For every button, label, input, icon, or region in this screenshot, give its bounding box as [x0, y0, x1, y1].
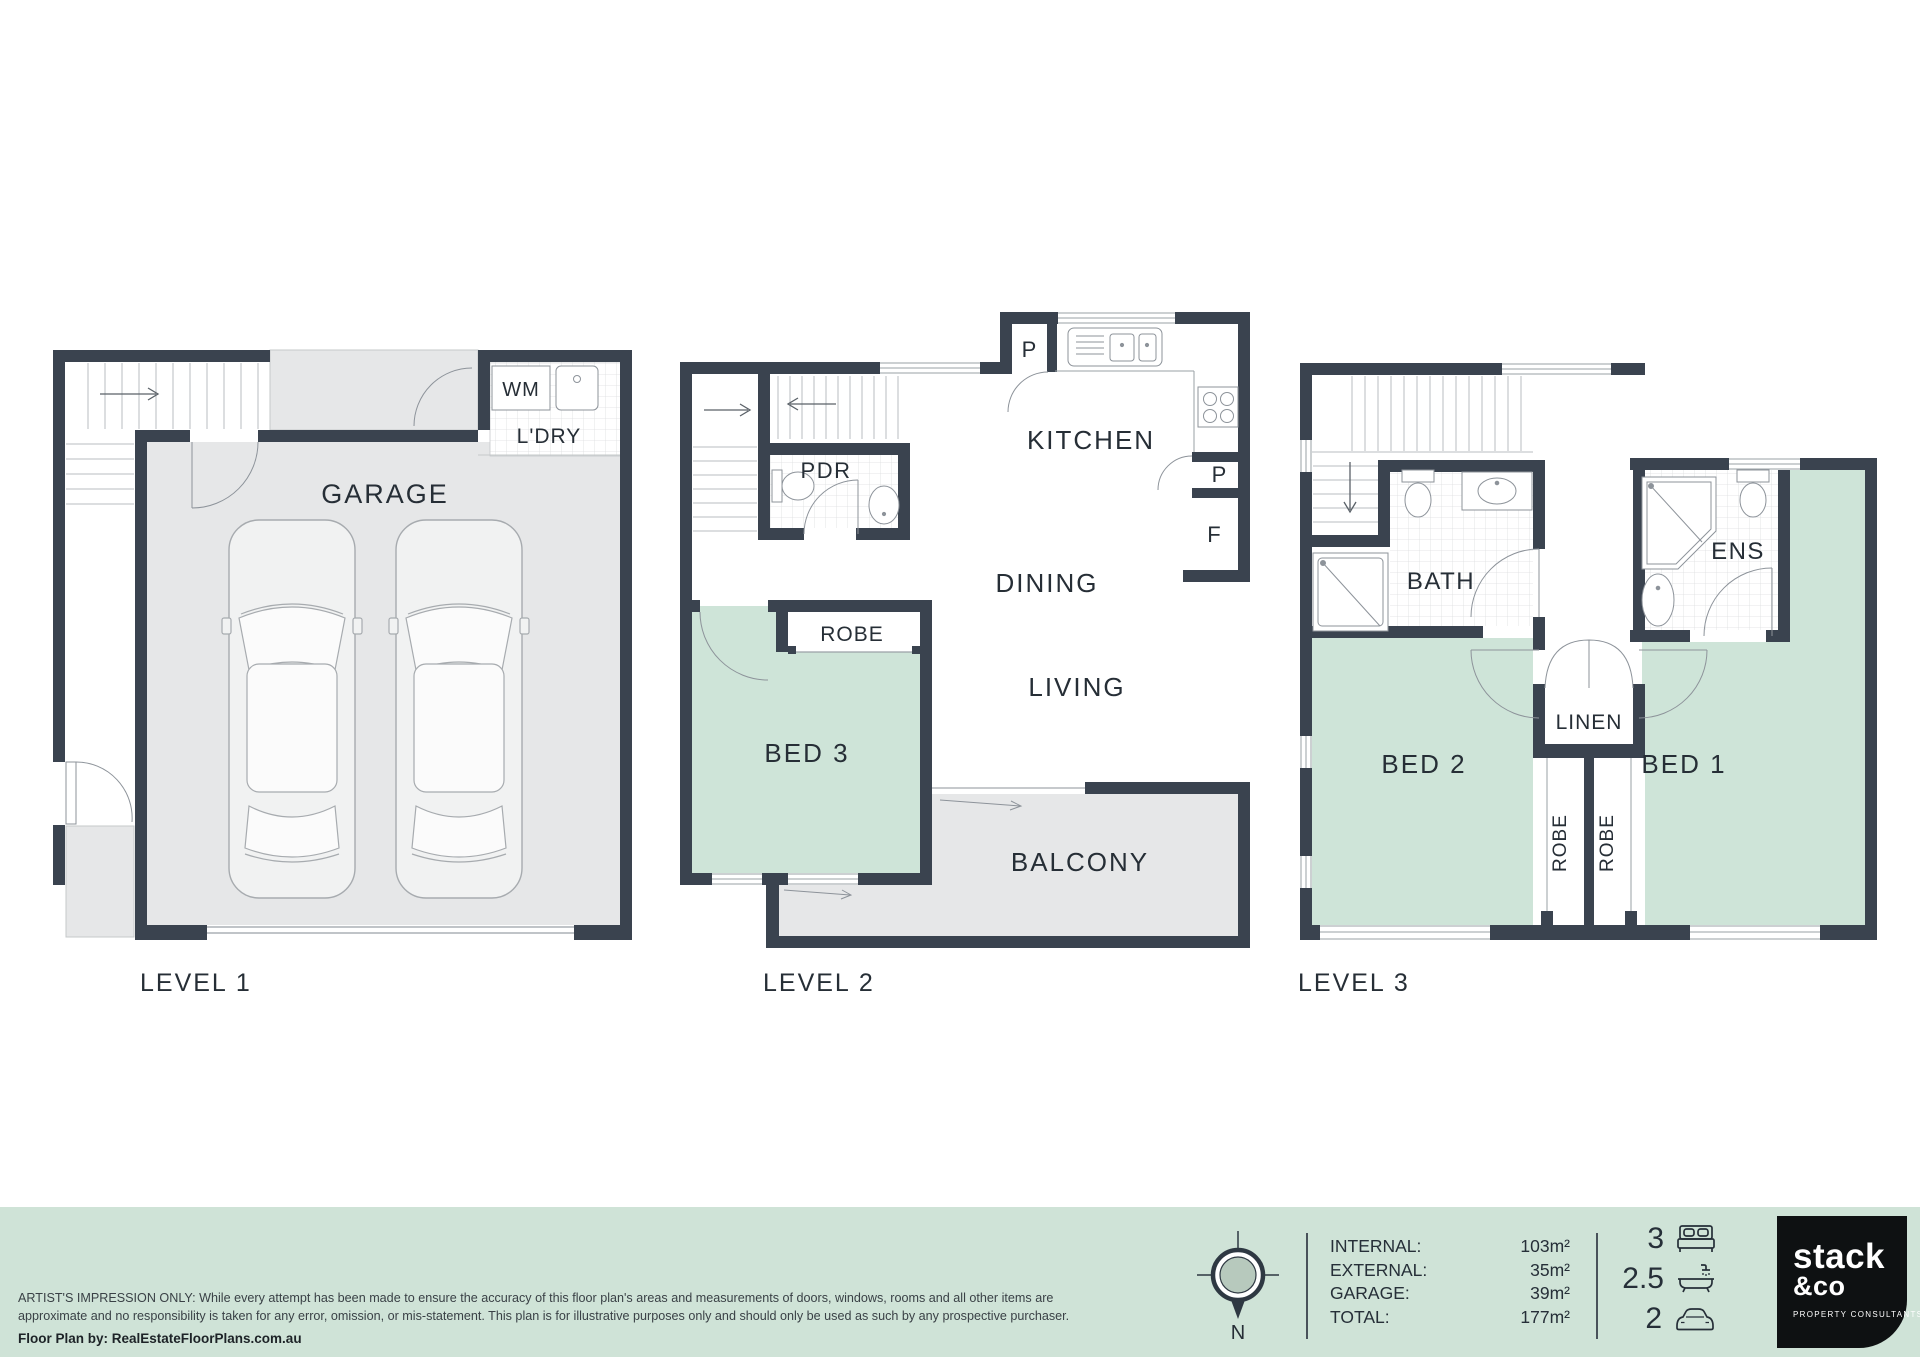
divider [1306, 1233, 1308, 1339]
bed2-floor [1312, 638, 1533, 925]
laundry-tub-icon [556, 366, 598, 410]
car-icon [222, 520, 362, 898]
bed-count-row: 3 [1598, 1219, 1716, 1259]
room-label-bath: BATH [1407, 568, 1475, 595]
bath-shower-icon [1313, 553, 1388, 631]
floorplans-canvas: WM L'DRY GARAGE LEVEL 1 [0, 0, 1920, 1207]
logo-word-stack: stack [1793, 1242, 1907, 1272]
feature-counts: 3 2.5 2 [1598, 1219, 1716, 1339]
room-label-dining: DINING [996, 568, 1099, 598]
area-label: INTERNAL: [1330, 1235, 1421, 1259]
level-1-plan: WM L'DRY GARAGE LEVEL 1 [53, 350, 632, 997]
bed-count: 3 [1647, 1222, 1664, 1256]
car-count-row: 2 [1598, 1299, 1716, 1339]
level-3-plan: BATH ENS LINEN ROBE ROBE BED 2 BED 1 LEV… [1298, 363, 1877, 997]
room-label-living: LIVING [1028, 672, 1125, 702]
garage-door [207, 927, 574, 933]
room-label-bed1: BED 1 [1641, 749, 1726, 779]
bath-basin-icon [1462, 472, 1532, 510]
room-label-balcony: BALCONY [1011, 847, 1149, 877]
area-label: EXTERNAL: [1330, 1259, 1427, 1283]
compass-north-label: N [1231, 1322, 1245, 1343]
area-row-total: TOTAL: 177m² [1330, 1306, 1570, 1330]
footer-band: ARTIST'S IMPRESSION ONLY: While every at… [0, 1207, 1920, 1357]
level-3-title: LEVEL 3 [1298, 969, 1410, 997]
disclaimer-text: ARTIST'S IMPRESSION ONLY: While every at… [18, 1289, 1118, 1325]
area-summary: INTERNAL: 103m² EXTERNAL: 35m² GARAGE: 3… [1330, 1235, 1570, 1329]
area-value: 39m² [1530, 1282, 1570, 1306]
room-label-fridge: F [1207, 522, 1220, 547]
pdr-basin-icon [869, 486, 899, 524]
room-label-garage: GARAGE [321, 479, 449, 509]
kitchen-sink-icon [1068, 328, 1162, 366]
logo-tagline: PROPERTY CONSULTANTS [1793, 1310, 1907, 1319]
room-label-pantry-top: P [1022, 337, 1037, 362]
area-value: 35m² [1530, 1259, 1570, 1283]
area-value: 177m² [1520, 1306, 1570, 1330]
disclaimer-line-1: ARTIST'S IMPRESSION ONLY: While every at… [18, 1289, 1118, 1307]
car-count: 2 [1645, 1302, 1662, 1336]
car-icon [1674, 1305, 1716, 1333]
area-label: TOTAL: [1330, 1306, 1390, 1330]
bath-icon [1676, 1263, 1716, 1295]
room-label-bed3: BED 3 [764, 738, 849, 768]
room-label-robe-left: ROBE [1550, 814, 1571, 872]
disclaimer-line-2: approximate and no responsibility is tak… [18, 1307, 1118, 1325]
room-label-robe-l2: ROBE [820, 623, 884, 646]
bath-count: 2.5 [1622, 1262, 1664, 1296]
room-label-ens: ENS [1711, 538, 1765, 565]
car-icon [389, 520, 529, 898]
bed-icon [1676, 1224, 1716, 1254]
room-label-kitchen: KITCHEN [1027, 425, 1155, 455]
room-label-linen: LINEN [1556, 711, 1623, 734]
room-label-pdr: PDR [801, 458, 852, 483]
area-row-external: EXTERNAL: 35m² [1330, 1259, 1570, 1283]
stack-and-co-logo: stack &co PROPERTY CONSULTANTS [1777, 1216, 1907, 1348]
room-label-ldry: L'DRY [517, 425, 582, 448]
area-label: GARAGE: [1330, 1282, 1410, 1306]
ens-basin-icon [1642, 574, 1674, 626]
credit-text: Floor Plan by: RealEstateFloorPlans.com.… [18, 1331, 302, 1346]
level-1-title: LEVEL 1 [140, 969, 252, 997]
room-label-wm: WM [502, 379, 540, 401]
bath-count-row: 2.5 [1598, 1259, 1716, 1299]
room-label-bed2: BED 2 [1381, 749, 1466, 779]
level-2-title: LEVEL 2 [763, 969, 875, 997]
area-row-internal: INTERNAL: 103m² [1330, 1235, 1570, 1259]
cooktop-icon [1198, 387, 1238, 427]
area-row-garage: GARAGE: 39m² [1330, 1282, 1570, 1306]
area-value: 103m² [1520, 1235, 1570, 1259]
room-label-robe-right: ROBE [1597, 814, 1618, 872]
logo-word-co: &co [1793, 1272, 1907, 1300]
level-2-plan: P KITCHEN P F PDR DINING LIVING ROBE BED… [680, 312, 1250, 997]
room-label-pantry-side: P [1212, 462, 1227, 487]
compass-icon: N [1196, 1229, 1281, 1343]
floorplan-page: WM L'DRY GARAGE LEVEL 1 [0, 0, 1920, 1357]
